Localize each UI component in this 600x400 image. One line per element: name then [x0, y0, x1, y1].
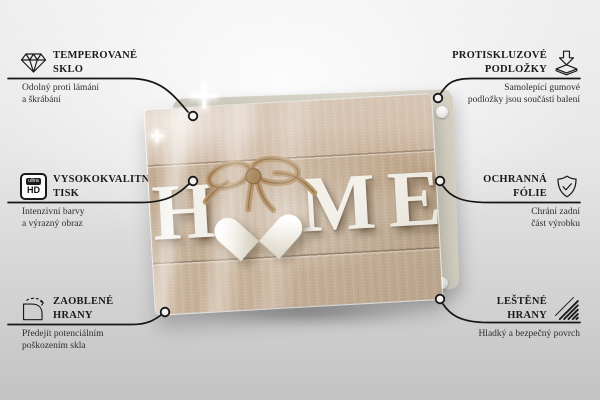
ultra-hd-icon-top-label: ultra — [26, 178, 41, 186]
feature-title: PROTISKLUZOVÉ — [452, 49, 547, 62]
feature-description: a výrazný obraz — [22, 219, 168, 231]
feature-title: OCHRANNÁ — [483, 173, 547, 186]
feature-title: LEŠTĚNÉ — [497, 295, 547, 308]
feature-title: TEMPEROVANÉ — [53, 49, 137, 62]
ultra-hd-icon-label: HD — [27, 186, 40, 195]
diamond-icon — [20, 49, 47, 76]
anti-slip-pad — [436, 106, 448, 118]
feature-description: a škrábání — [22, 95, 168, 107]
product-infographic: H — [0, 0, 600, 400]
feature-description: Intenzivní barvy — [22, 207, 168, 219]
feature-title: SKLO — [53, 63, 137, 76]
feature-title: ZAOBLENÉ — [53, 295, 113, 308]
product-glass-panel: H — [143, 93, 443, 316]
anti-slip-pads-icon — [553, 49, 580, 76]
rounded-corner-icon — [20, 295, 47, 322]
feature-description: Předejít potenciálním — [22, 329, 168, 341]
polished-edges-icon — [553, 295, 580, 322]
feature-description: Odolný proti lámání — [22, 83, 168, 95]
feature-rounded-edges: ZAOBLENÉ HRANY Předejít potenciálním poš… — [8, 295, 168, 352]
feature-high-quality-print: ultra HD VYSOKOKVALITNÍ TISK Intenzivní … — [8, 173, 168, 230]
feature-title: HRANY — [53, 309, 113, 322]
shield-check-icon — [553, 173, 580, 200]
feature-title: VYSOKOKVALITNÍ — [53, 173, 154, 186]
feature-title: HRANY — [507, 309, 547, 322]
feature-description: Hladký a bezpečný povrch — [420, 329, 580, 341]
feature-description: poškozením skla — [22, 341, 168, 353]
ultra-hd-icon: ultra HD — [20, 173, 47, 200]
glass-reflection — [145, 94, 443, 315]
feature-title: TISK — [53, 187, 154, 200]
feature-title: FÓLIE — [513, 187, 547, 200]
feature-title: PODLOŽKY — [485, 63, 547, 76]
feature-tempered-glass: TEMPEROVANÉ SKLO Odolný proti lámání a š… — [8, 49, 168, 106]
